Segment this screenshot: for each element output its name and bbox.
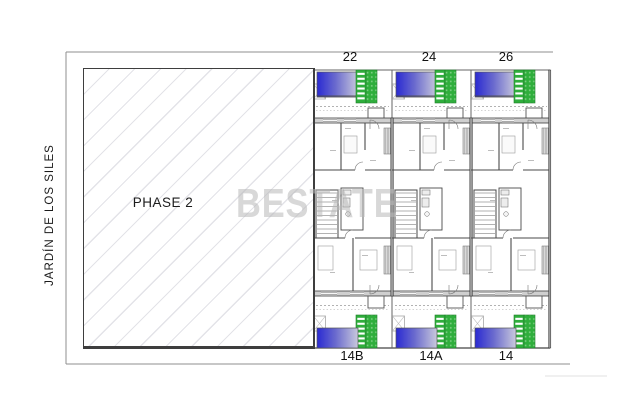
unit-number-14A: 14A: [409, 349, 453, 363]
unit-26-14: [470, 70, 550, 348]
phase-2-label: PHASE 2: [83, 195, 243, 210]
unit-24-14A: [391, 70, 471, 348]
unit-22-14B: [312, 70, 392, 348]
end-wall: [549, 70, 551, 348]
street-name-label: JARDÍN DE LOS SILES: [44, 130, 62, 300]
unit-number-14: 14: [484, 349, 528, 363]
unit-number-24: 24: [407, 50, 451, 64]
unit-number-14B: 14B: [330, 349, 374, 363]
site-plan-page: PHASE 2 JARDÍN DE LOS SILES 22 24 26 14B…: [0, 0, 620, 400]
unit-number-26: 26: [484, 50, 528, 64]
unit-number-22: 22: [328, 50, 372, 64]
